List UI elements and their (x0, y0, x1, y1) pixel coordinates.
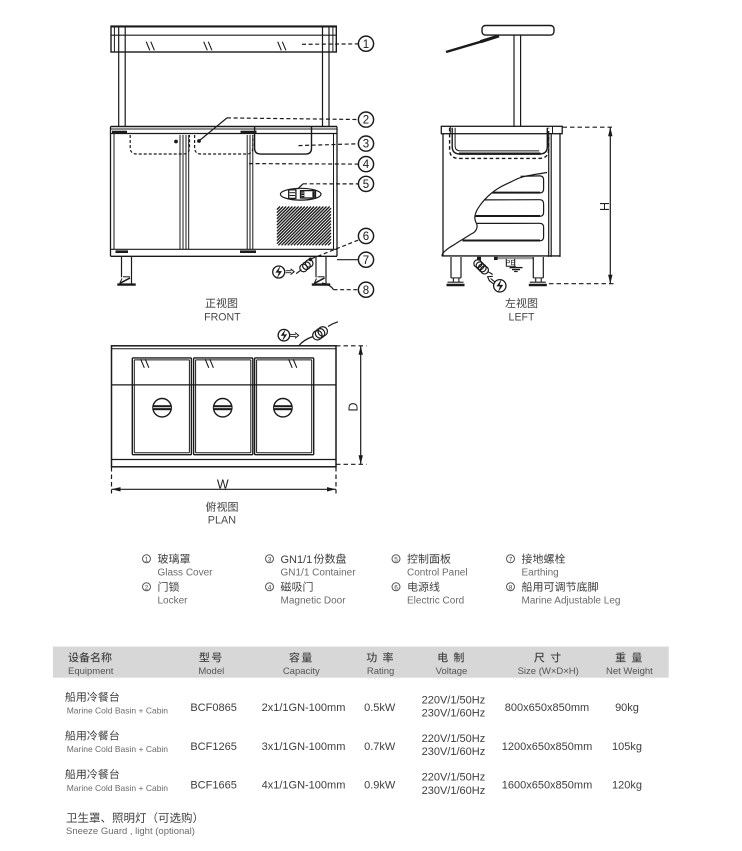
svg-text:Marine Cold Basin + Cabin: Marine Cold Basin + Cabin (67, 706, 169, 716)
svg-text:Rating: Rating (367, 666, 394, 677)
svg-text:7: 7 (509, 557, 513, 564)
svg-text:Earthing: Earthing (522, 568, 559, 579)
svg-text:220V/1/50Hz: 220V/1/50Hz (422, 772, 486, 784)
svg-text:0.7kW: 0.7kW (364, 741, 396, 753)
svg-text:Net Weight: Net Weight (606, 666, 653, 677)
svg-text:Capacity: Capacity (283, 666, 320, 677)
svg-text:1: 1 (363, 39, 369, 51)
svg-text:2: 2 (363, 115, 369, 127)
svg-text:Sneeze Guard , light (optional: Sneeze Guard , light (optional) (66, 826, 195, 837)
svg-text:5: 5 (363, 179, 369, 191)
svg-text:2x1/1GN-100mm: 2x1/1GN-100mm (262, 702, 346, 714)
svg-text:H: H (598, 202, 612, 211)
svg-text:Marine Cold Basin + Cabin: Marine Cold Basin + Cabin (67, 744, 169, 754)
svg-text:Model: Model (198, 666, 224, 677)
svg-text:6: 6 (394, 585, 398, 592)
svg-text:230V/1/60Hz: 230V/1/60Hz (422, 708, 486, 720)
svg-text:BCF0865: BCF0865 (190, 702, 236, 714)
svg-text:FRONT: FRONT (204, 311, 241, 323)
svg-text:8: 8 (363, 285, 369, 297)
svg-text:1600x650x850mm: 1600x650x850mm (502, 779, 593, 791)
svg-text:220V/1/50Hz: 220V/1/50Hz (422, 694, 486, 706)
svg-text:Marine Cold Basin + Cabin: Marine Cold Basin + Cabin (67, 783, 169, 793)
svg-text:Magnetic Door: Magnetic Door (281, 596, 347, 607)
svg-text:Control Panel: Control Panel (407, 568, 468, 579)
svg-text:6: 6 (363, 231, 369, 243)
svg-text:Electric Cord: Electric Cord (407, 596, 464, 607)
svg-text:0.5kW: 0.5kW (364, 702, 396, 714)
svg-text:3x1/1GN-100mm: 3x1/1GN-100mm (262, 741, 346, 753)
svg-text:105kg: 105kg (612, 741, 642, 753)
svg-text:GN1/1 Container: GN1/1 Container (281, 568, 357, 579)
svg-text:PLAN: PLAN (208, 515, 236, 527)
svg-text:4: 4 (363, 159, 370, 171)
svg-text:230V/1/60Hz: 230V/1/60Hz (422, 746, 486, 758)
svg-text:Marine Adjustable Leg: Marine Adjustable Leg (522, 596, 621, 607)
svg-text:Glass Cover: Glass Cover (158, 568, 214, 579)
svg-text:LEFT: LEFT (509, 311, 535, 323)
svg-text:Locker: Locker (158, 596, 189, 607)
svg-text:BCF1665: BCF1665 (190, 779, 236, 791)
svg-text:3: 3 (363, 139, 369, 151)
svg-text:D: D (346, 402, 360, 411)
svg-text:220V/1/50Hz: 220V/1/50Hz (422, 733, 486, 745)
svg-text:5: 5 (394, 557, 398, 564)
svg-text:Size (W×D×H): Size (W×D×H) (518, 666, 579, 677)
svg-text:1: 1 (145, 557, 149, 564)
svg-text:8: 8 (509, 585, 513, 592)
svg-text:W: W (217, 477, 229, 491)
svg-text:4: 4 (268, 585, 272, 592)
svg-text:Equipment: Equipment (68, 666, 114, 677)
svg-text:90kg: 90kg (615, 702, 639, 714)
svg-text:1200x650x850mm: 1200x650x850mm (502, 741, 593, 753)
svg-text:7: 7 (363, 255, 369, 267)
svg-text:GN1/1: GN1/1 (281, 554, 313, 566)
svg-text:3: 3 (268, 557, 272, 564)
svg-text:Voltage: Voltage (436, 666, 468, 677)
svg-text:4x1/1GN-100mm: 4x1/1GN-100mm (262, 779, 346, 791)
svg-text:120kg: 120kg (612, 779, 642, 791)
svg-text:230V/1/60Hz: 230V/1/60Hz (422, 785, 486, 797)
svg-text:800x650x850mm: 800x650x850mm (505, 702, 589, 714)
svg-text:BCF1265: BCF1265 (190, 741, 236, 753)
svg-text:2: 2 (145, 585, 149, 592)
svg-text:0.9kW: 0.9kW (364, 779, 396, 791)
